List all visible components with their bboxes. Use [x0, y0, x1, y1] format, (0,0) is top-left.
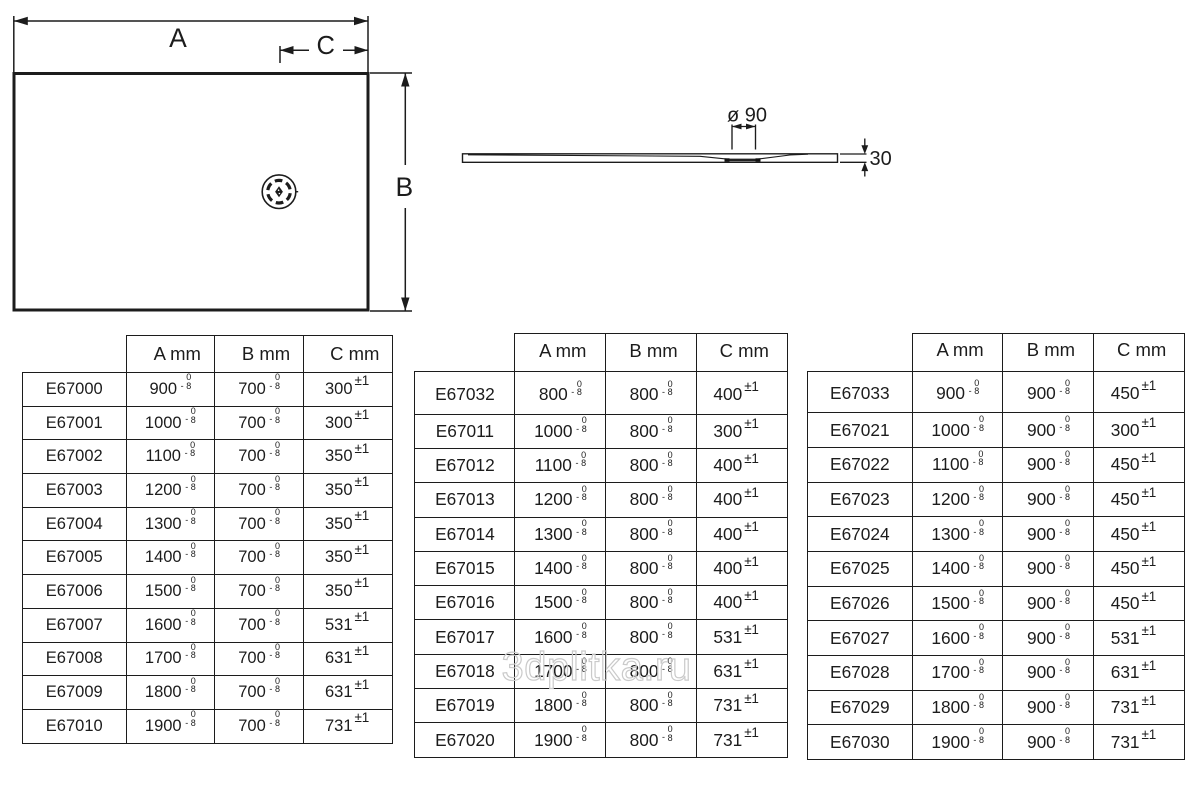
svg-text:30: 30	[870, 148, 892, 170]
svg-text:B: B	[395, 172, 413, 202]
svg-text:C: C	[316, 32, 334, 60]
svg-text:ø 90: ø 90	[727, 105, 767, 127]
svg-text:A: A	[169, 23, 187, 53]
